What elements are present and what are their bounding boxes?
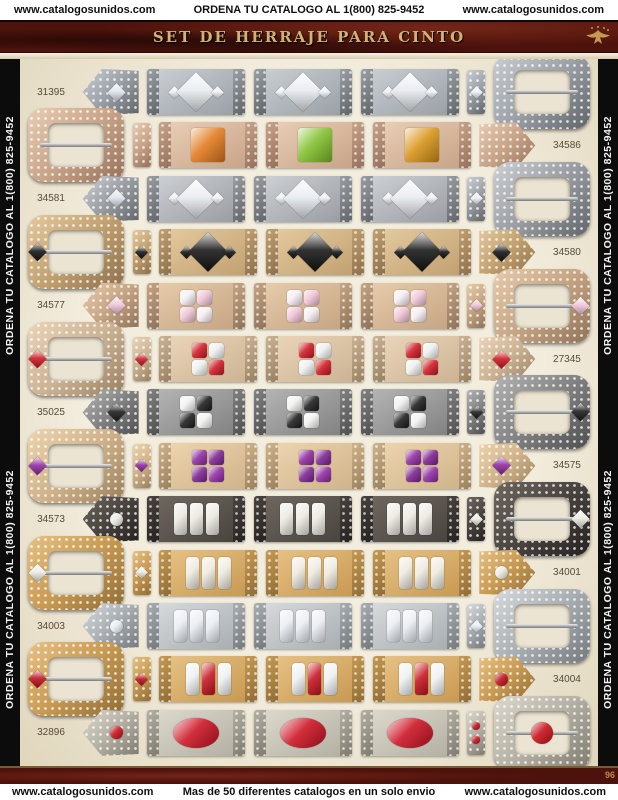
loop-panel xyxy=(266,283,340,329)
loop-edge xyxy=(361,389,373,435)
loop-edge xyxy=(266,229,278,275)
belt-keeper-piece xyxy=(133,444,151,488)
loop-panel xyxy=(159,176,233,222)
sku-label: 34580 xyxy=(544,247,590,258)
stone xyxy=(394,396,409,411)
loop-edge xyxy=(447,283,459,329)
stone-grid xyxy=(394,290,426,322)
stone xyxy=(107,296,125,314)
belt-loop-piece xyxy=(159,229,257,275)
buckle-prong xyxy=(40,143,112,147)
stone xyxy=(411,413,426,428)
stone xyxy=(425,192,438,205)
sku-label: 27345 xyxy=(544,354,590,365)
stone xyxy=(406,450,421,465)
stone xyxy=(423,467,438,482)
stone xyxy=(495,566,508,579)
loop-edge xyxy=(352,336,364,382)
belt-keeper-piece xyxy=(467,604,485,648)
stone xyxy=(411,307,426,322)
belt-loop-piece xyxy=(147,710,245,756)
loop-panel xyxy=(278,443,352,489)
stone xyxy=(28,350,46,368)
buckle-prong xyxy=(40,250,112,254)
stone xyxy=(296,610,309,642)
loop-edge xyxy=(266,336,278,382)
stone-grid xyxy=(406,343,438,375)
bottom-bar-promo-text: Mas de 50 diferentes catalogos en un sol… xyxy=(183,786,435,798)
belt-keeper-piece xyxy=(467,70,485,114)
loop-edge xyxy=(147,69,159,115)
loop-edge xyxy=(233,69,245,115)
stone xyxy=(411,290,426,305)
top-bar-right-url: www.catalogosunidos.com xyxy=(463,4,604,16)
belt-buckle-piece xyxy=(494,269,590,343)
stone xyxy=(399,663,412,695)
stone xyxy=(415,663,428,695)
loop-edge xyxy=(147,496,159,542)
stone xyxy=(304,307,319,322)
loop-edge xyxy=(147,283,159,329)
stone xyxy=(180,413,195,428)
sku-label: 34575 xyxy=(544,460,590,471)
loop-panel xyxy=(385,443,459,489)
belt-loop-piece xyxy=(266,443,364,489)
loop-panel xyxy=(278,656,352,702)
loop-edge xyxy=(373,443,385,489)
stone xyxy=(431,663,444,695)
loop-edge xyxy=(340,389,352,435)
stone xyxy=(492,457,510,475)
sku-label: 34573 xyxy=(28,514,74,525)
stone xyxy=(202,663,215,695)
loop-panel xyxy=(373,389,447,435)
loop-edge xyxy=(254,710,266,756)
belt-buckle-piece xyxy=(28,536,124,610)
left-sidebar: ORDENA TU CATALOGO AL 1(800) 825-9452 OR… xyxy=(0,59,20,766)
belt-keeper-piece xyxy=(133,337,151,381)
stone xyxy=(495,673,508,686)
loop-edge xyxy=(245,656,257,702)
stone-grid xyxy=(192,450,224,482)
stone xyxy=(173,718,219,748)
loop-panel xyxy=(373,176,447,222)
stone xyxy=(209,450,224,465)
stone xyxy=(192,343,207,358)
belt-loop-piece xyxy=(147,69,245,115)
belt-loop-piece xyxy=(254,176,352,222)
stone xyxy=(394,290,409,305)
belt-loop-piece xyxy=(254,496,352,542)
title-banner: SET DE HERRAJE PARA CINTO xyxy=(0,20,618,53)
loop-panel xyxy=(266,710,340,756)
belt-loop-piece xyxy=(361,496,459,542)
sidebar-phone-text: ORDENA TU CATALOGO AL 1(800) 825-9452 xyxy=(4,116,16,355)
loop-edge xyxy=(361,496,373,542)
bottom-bar-right-url: www.catalogosunidos.com xyxy=(465,786,606,798)
belt-loop-piece xyxy=(373,656,471,702)
stone xyxy=(192,360,207,375)
sidebar-phone-text: ORDENA TU CATALOGO AL 1(800) 825-9452 xyxy=(602,470,614,709)
stone xyxy=(209,343,224,358)
stone-grid xyxy=(299,450,331,482)
belt-buckle-piece xyxy=(28,429,124,503)
loop-edge xyxy=(447,710,459,756)
stone xyxy=(28,563,46,581)
loop-edge xyxy=(352,656,364,702)
stone xyxy=(308,663,321,695)
belt-loop-piece xyxy=(266,229,364,275)
belt-loop-piece xyxy=(373,229,471,275)
stone xyxy=(295,232,335,272)
loop-edge xyxy=(159,229,171,275)
stone xyxy=(470,299,483,312)
stone xyxy=(197,396,212,411)
loop-panel xyxy=(373,710,447,756)
right-sidebar: ORDENA TU CATALOGO AL 1(800) 825-9452 OR… xyxy=(598,59,618,766)
belt-buckle-piece xyxy=(494,59,590,129)
stone xyxy=(287,396,302,411)
belt-loop-piece xyxy=(147,603,245,649)
stone xyxy=(394,307,409,322)
loop-edge xyxy=(340,283,352,329)
loop-panel xyxy=(171,229,245,275)
bottom-bar-left-url: www.catalogosunidos.com xyxy=(12,786,153,798)
belt-loop-piece xyxy=(147,283,245,329)
belt-loop-piece xyxy=(361,176,459,222)
stone-grid xyxy=(192,343,224,375)
loop-panel xyxy=(385,229,459,275)
stone xyxy=(387,610,400,642)
stone xyxy=(206,503,219,535)
stone xyxy=(419,610,432,642)
page-title: SET DE HERRAJE PARA CINTO xyxy=(153,28,465,46)
stone xyxy=(472,736,480,744)
belt-loop-piece xyxy=(147,496,245,542)
loop-edge xyxy=(447,603,459,649)
stone xyxy=(425,86,438,99)
stone xyxy=(437,246,450,259)
stone xyxy=(197,290,212,305)
buckle-prong xyxy=(506,624,578,628)
stone xyxy=(206,610,219,642)
stone xyxy=(394,413,409,428)
stone xyxy=(423,360,438,375)
stone xyxy=(110,726,123,739)
loop-edge xyxy=(147,710,159,756)
belt-loop-piece xyxy=(373,550,471,596)
product-row: 32896 xyxy=(28,708,590,758)
loop-panel xyxy=(385,550,459,596)
loop-edge xyxy=(245,229,257,275)
stone xyxy=(399,557,412,589)
stone xyxy=(28,457,46,475)
belt-buckle-piece xyxy=(28,215,124,289)
loop-panel xyxy=(266,496,340,542)
stone xyxy=(387,503,400,535)
stone xyxy=(324,663,337,695)
stone xyxy=(211,86,224,99)
loop-edge xyxy=(361,69,373,115)
stone xyxy=(180,396,195,411)
buckle-prong xyxy=(40,357,112,361)
loop-edge xyxy=(352,443,364,489)
loop-panel xyxy=(159,496,233,542)
product-grid: 3139534586345813458034577273453502534575… xyxy=(20,59,598,766)
stone xyxy=(423,343,438,358)
stone xyxy=(308,557,321,589)
stone xyxy=(403,610,416,642)
loop-panel xyxy=(373,283,447,329)
loop-edge xyxy=(233,496,245,542)
stone xyxy=(387,718,433,748)
stone xyxy=(304,396,319,411)
belt-loop-piece xyxy=(159,336,257,382)
stone xyxy=(223,246,236,259)
stone xyxy=(423,450,438,465)
belt-loop-piece xyxy=(361,389,459,435)
loop-edge xyxy=(159,443,171,489)
stone xyxy=(192,467,207,482)
stone xyxy=(403,503,416,535)
loop-edge xyxy=(233,283,245,329)
buckle-prong xyxy=(506,410,578,414)
stone-grid xyxy=(180,290,212,322)
stone xyxy=(406,467,421,482)
loop-edge xyxy=(459,122,471,168)
sidebar-phone-text: ORDENA TU CATALOGO AL 1(800) 825-9452 xyxy=(4,470,16,709)
loop-panel xyxy=(171,336,245,382)
stone xyxy=(390,179,430,219)
belt-buckle-piece xyxy=(28,642,124,716)
stone xyxy=(202,557,215,589)
loop-edge xyxy=(340,603,352,649)
content-area: ORDENA TU CATALOGO AL 1(800) 825-9452 OR… xyxy=(0,59,618,766)
loop-edge xyxy=(340,69,352,115)
loop-edge xyxy=(147,603,159,649)
stone xyxy=(107,83,125,101)
belt-loop-piece xyxy=(266,122,364,168)
loop-edge xyxy=(266,656,278,702)
loop-edge xyxy=(159,122,171,168)
belt-loop-piece xyxy=(254,283,352,329)
belt-keeper-piece xyxy=(467,177,485,221)
belt-loop-piece xyxy=(254,69,352,115)
loop-edge xyxy=(361,176,373,222)
loop-panel xyxy=(373,496,447,542)
loop-edge xyxy=(159,550,171,596)
belt-keeper-piece xyxy=(467,711,485,755)
bottom-bar: www.catalogosunidos.com Mas de 50 difere… xyxy=(0,784,618,800)
stone-grid xyxy=(180,396,212,428)
top-bar-left-url: www.catalogosunidos.com xyxy=(14,4,155,16)
loop-edge xyxy=(373,336,385,382)
loop-panel xyxy=(159,603,233,649)
stone xyxy=(406,360,421,375)
stone xyxy=(135,566,148,579)
sku-label: 31395 xyxy=(28,87,74,98)
belt-loop-piece xyxy=(159,443,257,489)
loop-panel xyxy=(159,283,233,329)
sku-label: 34003 xyxy=(28,621,74,632)
sku-label: 34586 xyxy=(544,140,590,151)
belt-loop-piece xyxy=(361,69,459,115)
loop-edge xyxy=(254,603,266,649)
belt-loop-piece xyxy=(266,336,364,382)
loop-edge xyxy=(266,443,278,489)
stone xyxy=(470,620,483,633)
stone xyxy=(287,307,302,322)
stone xyxy=(280,503,293,535)
stone xyxy=(209,360,224,375)
stone xyxy=(280,610,293,642)
stone xyxy=(571,403,589,421)
loop-edge xyxy=(361,283,373,329)
sidebar-phone-text: ORDENA TU CATALOGO AL 1(800) 825-9452 xyxy=(602,116,614,355)
stone xyxy=(292,663,305,695)
stone xyxy=(135,246,148,259)
loop-panel xyxy=(373,69,447,115)
loop-edge xyxy=(459,229,471,275)
stone xyxy=(28,670,46,688)
buckle-prong xyxy=(506,197,578,201)
loop-panel xyxy=(159,710,233,756)
stone xyxy=(191,128,225,162)
stone xyxy=(192,450,207,465)
loop-panel xyxy=(266,389,340,435)
stone xyxy=(402,232,442,272)
stone-grid xyxy=(287,290,319,322)
belt-buckle-piece xyxy=(28,108,124,182)
loop-edge xyxy=(233,176,245,222)
stone xyxy=(304,290,319,305)
stone xyxy=(531,722,553,744)
loop-edge xyxy=(245,443,257,489)
top-bar-order-phone: ORDENA TU CATALOGO AL 1(800) 825-9452 xyxy=(194,4,425,16)
top-bar: www.catalogosunidos.com ORDENA TU CATALO… xyxy=(0,0,618,20)
stone xyxy=(318,86,331,99)
loop-panel xyxy=(159,389,233,435)
stone xyxy=(324,557,337,589)
loop-edge xyxy=(245,550,257,596)
belt-buckle-piece xyxy=(494,482,590,556)
belt-buckle-piece xyxy=(494,375,590,449)
loop-edge xyxy=(447,496,459,542)
belt-loop-piece xyxy=(266,656,364,702)
loop-panel xyxy=(385,122,459,168)
loop-edge xyxy=(233,389,245,435)
loop-panel xyxy=(171,656,245,702)
belt-loop-piece xyxy=(159,656,257,702)
loop-edge xyxy=(447,389,459,435)
stone xyxy=(174,503,187,535)
loop-edge xyxy=(373,122,385,168)
loop-edge xyxy=(159,656,171,702)
stone xyxy=(299,467,314,482)
belt-keeper-piece xyxy=(133,657,151,701)
loop-edge xyxy=(233,603,245,649)
stone xyxy=(135,459,148,472)
loop-panel xyxy=(385,656,459,702)
belt-loop-piece xyxy=(373,336,471,382)
stone xyxy=(299,450,314,465)
loop-edge xyxy=(159,336,171,382)
stone xyxy=(316,360,331,375)
belt-loop-piece xyxy=(254,389,352,435)
stone xyxy=(406,343,421,358)
stone xyxy=(110,620,123,633)
stone xyxy=(470,513,483,526)
stone xyxy=(571,510,589,528)
sku-label: 34004 xyxy=(544,674,590,685)
stone xyxy=(218,663,231,695)
stone xyxy=(110,513,123,526)
buckle-prong xyxy=(506,517,578,521)
sku-label: 34577 xyxy=(28,300,74,311)
sku-label: 35025 xyxy=(28,407,74,418)
stone-grid xyxy=(406,450,438,482)
stone xyxy=(312,610,325,642)
belt-keeper-piece xyxy=(133,230,151,274)
stone xyxy=(405,128,439,162)
loop-edge xyxy=(373,229,385,275)
stone xyxy=(209,467,224,482)
loop-edge xyxy=(340,176,352,222)
stone-grid xyxy=(299,343,331,375)
stone xyxy=(318,192,331,205)
stone xyxy=(316,343,331,358)
loop-edge xyxy=(361,710,373,756)
belt-loop-piece xyxy=(159,550,257,596)
stone xyxy=(296,503,309,535)
stone xyxy=(492,350,510,368)
stone xyxy=(390,72,430,112)
belt-loop-piece xyxy=(147,176,245,222)
stone xyxy=(411,396,426,411)
stone xyxy=(177,179,217,219)
buckle-prong xyxy=(40,464,112,468)
stone xyxy=(470,406,483,419)
loop-edge xyxy=(245,122,257,168)
loop-edge xyxy=(352,550,364,596)
loop-edge xyxy=(254,176,266,222)
stone xyxy=(287,290,302,305)
belt-loop-piece xyxy=(361,283,459,329)
loop-edge xyxy=(459,550,471,596)
loop-edge xyxy=(245,336,257,382)
loop-panel xyxy=(278,229,352,275)
buckle-prong xyxy=(40,677,112,681)
belt-buckle-piece xyxy=(494,589,590,663)
belt-loop-piece xyxy=(373,122,471,168)
stone xyxy=(415,557,428,589)
eagle-logo-icon xyxy=(585,25,611,54)
loop-edge xyxy=(447,176,459,222)
stone xyxy=(431,557,444,589)
stone xyxy=(470,86,483,99)
loop-edge xyxy=(459,336,471,382)
stone xyxy=(190,610,203,642)
loop-edge xyxy=(266,550,278,596)
belt-loop-piece xyxy=(361,710,459,756)
loop-edge xyxy=(254,283,266,329)
loop-panel xyxy=(171,122,245,168)
stone xyxy=(280,718,326,748)
belt-loop-piece xyxy=(254,710,352,756)
stone xyxy=(571,296,589,314)
stone xyxy=(211,192,224,205)
buckle-prong xyxy=(40,571,112,575)
